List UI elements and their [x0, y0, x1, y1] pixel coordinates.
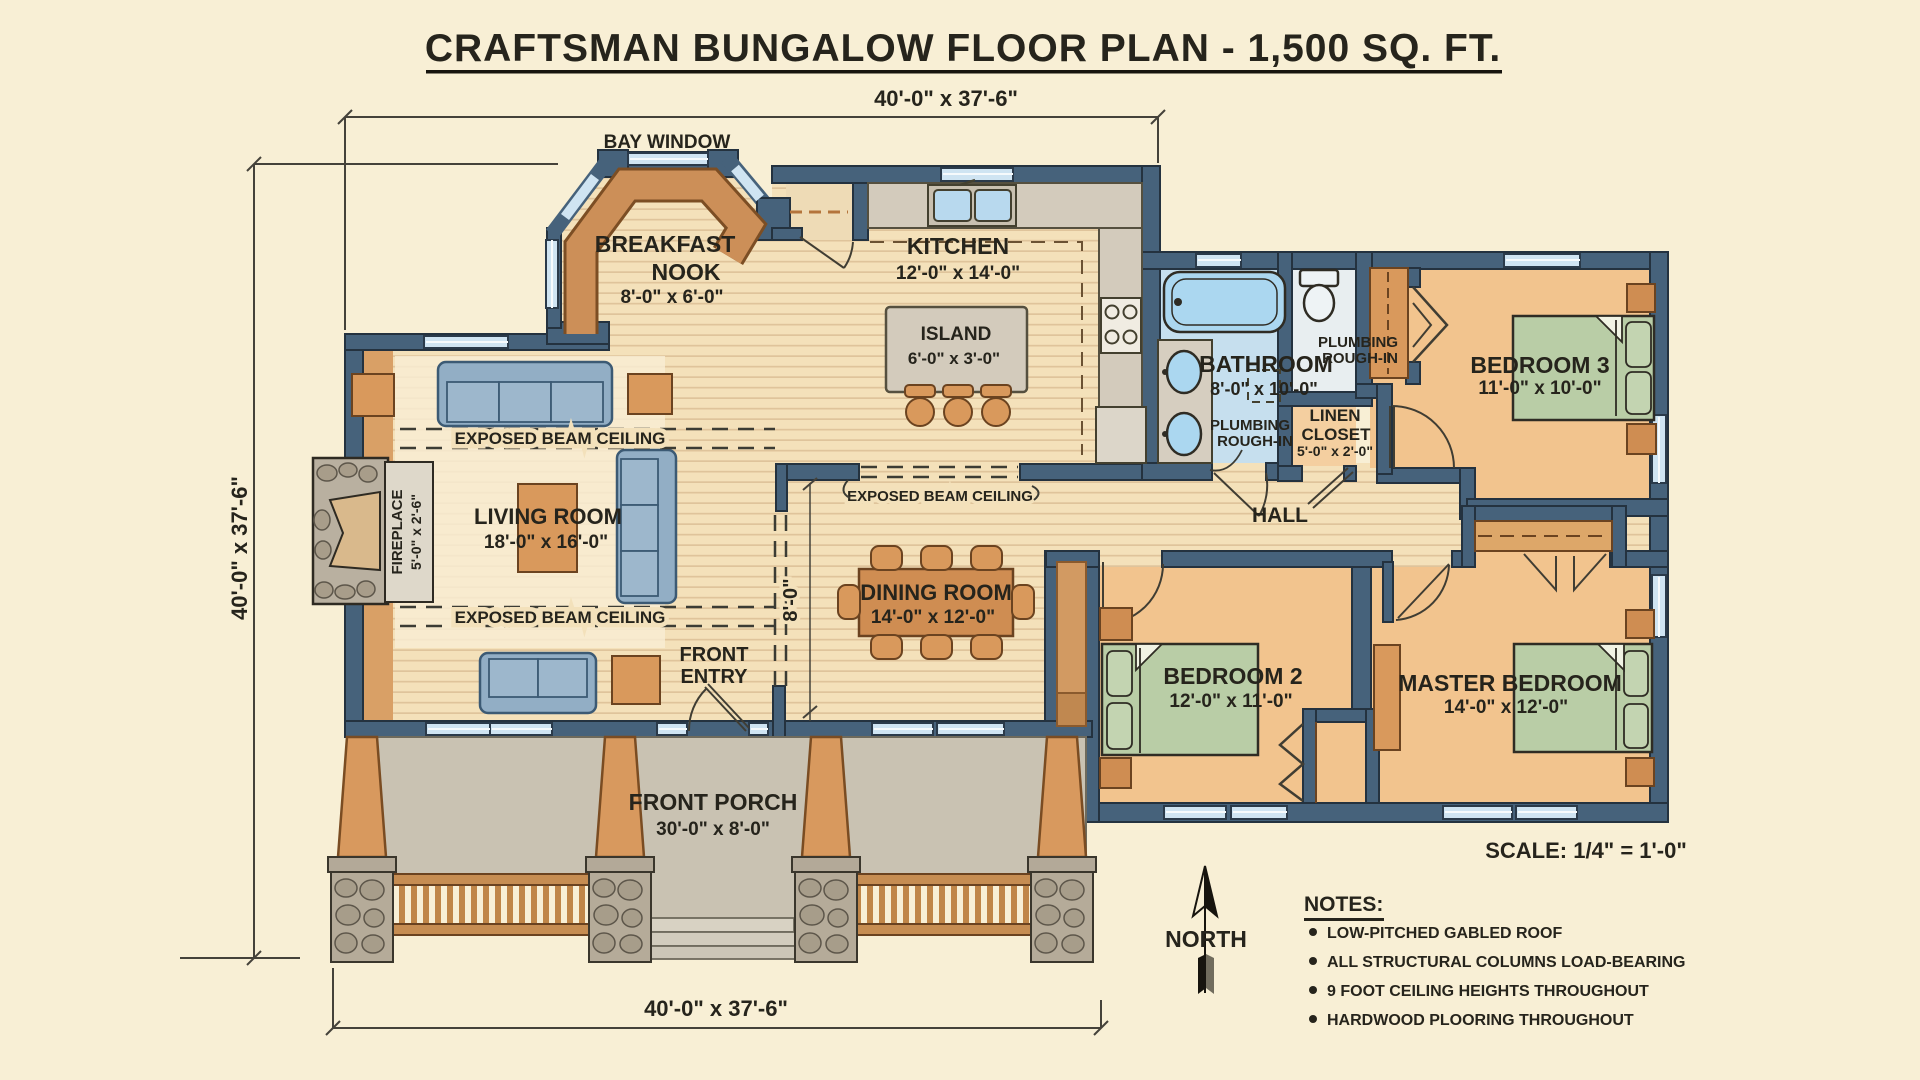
svg-text:LOW-PITCHED GABLED ROOF: LOW-PITCHED GABLED ROOF — [1327, 925, 1562, 942]
svg-text:KITCHEN: KITCHEN — [907, 233, 1009, 259]
svg-text:8'-0": 8'-0" — [780, 578, 802, 621]
svg-text:EXPOSED BEAM CEILING: EXPOSED BEAM CEILING — [847, 488, 1033, 505]
svg-text:MASTER BEDROOM: MASTER BEDROOM — [1398, 670, 1622, 696]
svg-text:12'-0" x 14'-0": 12'-0" x 14'-0" — [896, 263, 1020, 284]
svg-text:12'-0" x 11'-0": 12'-0" x 11'-0" — [1169, 691, 1292, 712]
svg-text:11'-0" x 10'-0": 11'-0" x 10'-0" — [1478, 378, 1601, 399]
svg-text:SCALE: 1/4" = 1'-0": SCALE: 1/4" = 1'-0" — [1485, 838, 1687, 863]
svg-text:PLUMBING: PLUMBING — [1318, 334, 1398, 351]
svg-text:8'-0" x 6'-0": 8'-0" x 6'-0" — [620, 287, 723, 308]
svg-text:ISLAND: ISLAND — [921, 324, 992, 345]
svg-text:FRONT: FRONT — [680, 644, 749, 666]
svg-text:NOOK: NOOK — [652, 259, 721, 285]
svg-text:PLUMBING: PLUMBING — [1210, 417, 1290, 434]
svg-text:ROUGH-IN: ROUGH-IN — [1217, 433, 1293, 450]
svg-text:BEDROOM 2: BEDROOM 2 — [1163, 663, 1302, 689]
svg-text:HALL: HALL — [1252, 504, 1308, 527]
svg-text:ALL STRUCTURAL COLUMNS LOAD-BE: ALL STRUCTURAL COLUMNS LOAD-BEARING — [1327, 954, 1686, 971]
svg-text:CRAFTSMAN BUNGALOW FLOOR PLAN: CRAFTSMAN BUNGALOW FLOOR PLAN - 1,500 SQ… — [425, 27, 1501, 70]
svg-text:CLOSET: CLOSET — [1302, 425, 1372, 444]
svg-text:EXPOSED BEAM CEILING: EXPOSED BEAM CEILING — [455, 608, 666, 627]
svg-text:9 FOOT CEILING HEIGHTS THROUGH: 9 FOOT CEILING HEIGHTS THROUGHOUT — [1327, 983, 1649, 1000]
svg-text:DINING ROOM: DINING ROOM — [860, 580, 1012, 605]
svg-text:14'-0" x 12'-0": 14'-0" x 12'-0" — [1444, 697, 1568, 718]
svg-text:HARDWOOD PLOORING THROUGHOUT: HARDWOOD PLOORING THROUGHOUT — [1327, 1012, 1634, 1029]
svg-text:LINEN: LINEN — [1310, 406, 1361, 425]
svg-text:NOTES:: NOTES: — [1304, 893, 1383, 916]
svg-text:BAY WINDOW: BAY WINDOW — [604, 132, 731, 153]
svg-text:40'-0" x 37'-6": 40'-0" x 37'-6" — [227, 476, 252, 620]
svg-text:ROUGH-IN: ROUGH-IN — [1322, 350, 1398, 367]
svg-text:6'-0" x 3'-0": 6'-0" x 3'-0" — [908, 349, 1000, 368]
svg-text:BEDROOM 3: BEDROOM 3 — [1470, 352, 1609, 378]
svg-text:BATHROOM: BATHROOM — [1199, 351, 1333, 377]
svg-text:BREAKFAST: BREAKFAST — [595, 231, 736, 257]
svg-text:NORTH: NORTH — [1165, 926, 1247, 952]
svg-text:EXPOSED BEAM CEILING: EXPOSED BEAM CEILING — [455, 429, 666, 448]
svg-text:8'-0" x 10'-0": 8'-0" x 10'-0" — [1210, 379, 1318, 399]
svg-text:FIREPLACE: FIREPLACE — [389, 489, 406, 574]
svg-text:FRONT PORCH: FRONT PORCH — [629, 789, 798, 815]
svg-text:14'-0" x 12'-0": 14'-0" x 12'-0" — [871, 607, 995, 628]
svg-text:5'-0" x 2'-0": 5'-0" x 2'-0" — [1297, 443, 1373, 459]
svg-text:40'-0" x 37'-6": 40'-0" x 37'-6" — [644, 996, 788, 1021]
svg-text:ENTRY: ENTRY — [680, 666, 748, 688]
svg-text:LIVING ROOM: LIVING ROOM — [474, 504, 622, 529]
svg-text:30'-0" x 8'-0": 30'-0" x 8'-0" — [656, 819, 770, 840]
svg-text:40'-0" x 37'-6": 40'-0" x 37'-6" — [874, 86, 1018, 111]
svg-text:5'-0" x 2'-6": 5'-0" x 2'-6" — [408, 494, 424, 570]
svg-text:18'-0" x 16'-0": 18'-0" x 16'-0" — [484, 532, 608, 553]
